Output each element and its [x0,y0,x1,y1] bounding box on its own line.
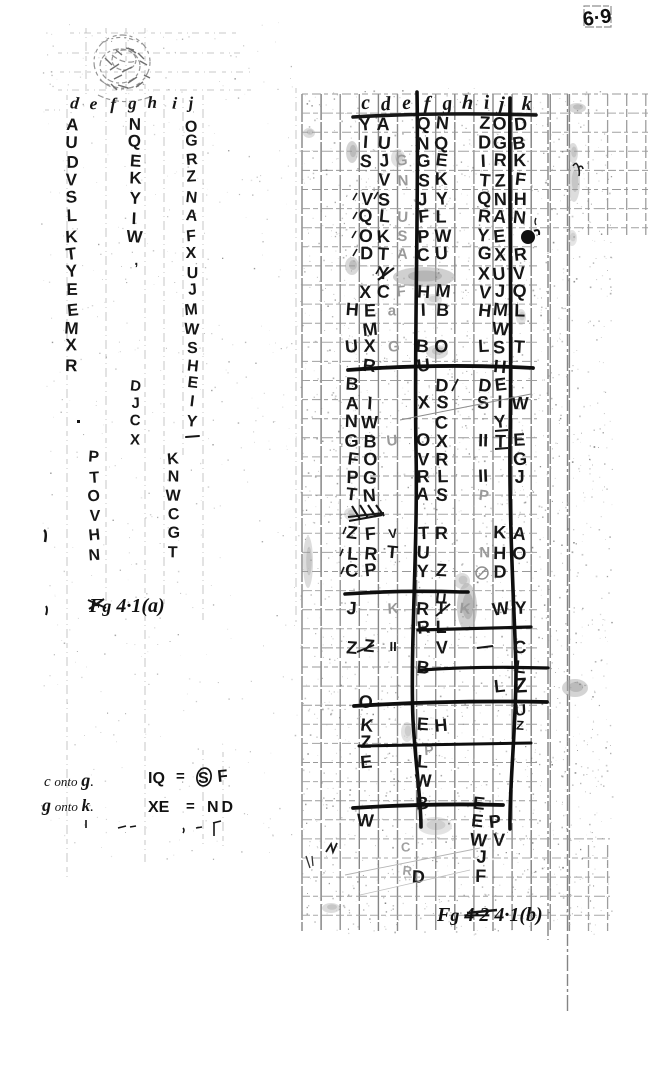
svg-text:W: W [415,771,432,791]
svg-text:N: N [344,411,358,431]
svg-text:W: W [356,810,374,831]
svg-text:E: E [416,714,429,735]
svg-text:S: S [492,337,505,358]
svg-text:ND: ND [207,799,236,816]
svg-text:X: X [359,282,371,302]
svg-text:H: H [434,715,449,736]
svg-text:Q: Q [417,114,431,134]
svg-text:D: D [129,377,142,395]
svg-text:M: M [435,280,452,302]
svg-text:D: D [494,562,507,582]
svg-text:R: R [513,244,528,265]
svg-text:O: O [359,692,374,712]
svg-text:T: T [377,244,389,265]
svg-text:C: C [376,281,391,302]
svg-text:C: C [129,412,141,429]
svg-text:F: F [396,283,407,301]
svg-text:J: J [378,150,390,171]
svg-text:A: A [512,523,527,544]
svg-text:B: B [416,657,431,678]
svg-text:V: V [493,830,506,850]
svg-text:U: U [65,133,78,153]
svg-text:X: X [65,335,78,354]
svg-text:c: c [361,92,371,114]
svg-text:J: J [495,280,506,301]
svg-text:C: C [345,560,359,580]
svg-text:E: E [66,280,78,299]
svg-text:X: X [130,431,141,448]
svg-text:XE: XE [148,799,170,816]
svg-text:N: N [168,468,180,485]
svg-text:N: N [88,547,101,565]
svg-text:U: U [514,702,526,720]
svg-text:S: S [417,170,430,191]
svg-text:K: K [387,600,399,618]
svg-text:T: T [418,523,430,543]
svg-text:P: P [364,559,378,580]
svg-text:U: U [187,265,199,282]
svg-text:L: L [514,300,526,320]
svg-text:A: A [376,114,390,134]
svg-text:A: A [492,206,507,227]
svg-text:e: e [401,92,412,115]
svg-text:,: , [134,252,139,268]
svg-text:H: H [477,300,492,321]
svg-text:E: E [435,149,449,170]
svg-text:A: A [185,207,199,225]
svg-text:Z: Z [514,674,528,698]
svg-text:X: X [417,392,431,413]
svg-text:k: k [521,93,532,115]
svg-text:B: B [436,300,450,321]
svg-text:G: G [395,152,408,170]
svg-text:X: X [186,245,197,262]
svg-text:W: W [491,598,510,620]
svg-text:P: P [478,487,490,505]
svg-text:I: I [497,392,502,412]
svg-text:T: T [89,469,100,487]
svg-text:U: U [434,243,448,264]
svg-text:T: T [513,337,525,358]
svg-text:L: L [478,336,490,357]
svg-text:Y: Y [514,598,527,618]
svg-text:B: B [345,374,359,395]
svg-text:F: F [364,523,377,544]
svg-text:G: G [185,132,198,150]
svg-text:E: E [513,429,526,450]
svg-text:S: S [65,187,78,207]
svg-text:X: X [494,245,506,265]
svg-text:S: S [436,392,450,413]
svg-text:II: II [478,430,489,450]
svg-text:A: A [415,484,430,505]
svg-text:K: K [459,600,472,618]
svg-text:O: O [434,336,449,356]
svg-text:Z: Z [346,637,359,658]
svg-text:R: R [435,523,448,543]
svg-text:A: A [396,245,408,263]
svg-text:M: M [184,301,199,319]
svg-text:K: K [435,169,448,189]
svg-text:U: U [386,432,398,450]
svg-text:J: J [515,467,525,487]
svg-text:H: H [186,357,199,375]
svg-text:Q: Q [358,205,373,226]
svg-text:X: X [478,263,490,283]
svg-text:L: L [437,466,449,486]
svg-text:N: N [185,189,198,207]
svg-text:L: L [493,676,506,697]
svg-text:S: S [359,151,373,172]
svg-text:G: G [477,242,493,263]
svg-text:N: N [512,207,527,228]
svg-text:F: F [475,866,486,886]
svg-text:E: E [470,810,484,831]
svg-text:F: F [514,169,527,190]
svg-text:S: S [187,340,198,357]
svg-text:Z: Z [516,718,525,733]
svg-text:Y: Y [129,189,142,209]
svg-text:G: G [167,525,180,542]
svg-text:E: E [359,751,373,772]
svg-text:E: E [66,300,79,320]
svg-text:W: W [183,321,200,339]
svg-text:H: H [88,527,101,545]
svg-text:T: T [386,542,399,563]
svg-text:V: V [378,170,391,190]
svg-text:B: B [415,336,429,357]
svg-text:g: g [127,94,137,113]
svg-text:A: A [66,115,79,135]
svg-text:U: U [344,336,359,357]
svg-text:6·9: 6·9 [581,5,613,31]
svg-text:D: D [513,113,528,134]
svg-text:F: F [417,206,430,227]
svg-text:II: II [390,639,397,654]
svg-text:IQ: IQ [148,770,165,787]
svg-text:V: V [89,508,100,525]
svg-text:D: D [478,132,491,152]
svg-text:F: F [185,228,196,246]
svg-text:Z: Z [360,732,371,752]
svg-text:O: O [512,543,526,563]
svg-text:K: K [129,168,143,187]
svg-text:R: R [65,356,78,375]
svg-text:a: a [388,302,397,319]
svg-text:K: K [166,450,180,468]
svg-text:Z: Z [494,170,506,191]
svg-text:C: C [416,244,430,265]
svg-text:Y: Y [186,413,199,431]
svg-text:N: N [397,172,408,189]
svg-text:S: S [435,484,449,505]
svg-text:T: T [168,544,178,561]
svg-text:W: W [166,488,182,505]
svg-text:Y: Y [493,411,507,432]
svg-text:D: D [411,866,425,887]
svg-text:P: P [88,448,100,466]
svg-text:K: K [493,522,506,542]
svg-text:J: J [476,846,487,867]
svg-text:O: O [87,487,101,505]
svg-text:U: U [434,590,447,608]
svg-text:W: W [126,227,144,247]
svg-text:G: G [387,338,400,356]
svg-text:R: R [477,205,492,226]
svg-text:II: II [478,466,489,486]
svg-text:J: J [187,281,197,299]
svg-text:I: I [420,300,426,320]
svg-text:K: K [513,150,526,170]
svg-text:Z: Z [435,560,447,580]
svg-text:L: L [436,207,447,227]
svg-text:O: O [492,113,508,134]
svg-text:R: R [416,617,431,638]
svg-text:U: U [416,542,430,563]
svg-text:W: W [361,412,378,432]
svg-text:I: I [131,209,137,228]
svg-text:Fg 4·2 4·1(b): Fg 4·2 4·1(b) [436,904,543,926]
svg-text:I: I [480,151,486,171]
svg-text:R: R [185,151,198,169]
svg-text:F: F [216,766,228,786]
svg-text:M: M [492,299,509,320]
svg-text:R: R [493,150,507,171]
svg-text:h: h [461,92,473,115]
svg-text:L: L [378,206,391,227]
svg-text:H: H [493,543,506,563]
svg-text:Q: Q [512,280,528,301]
svg-text:C: C [513,637,527,658]
svg-text:E: E [364,300,376,320]
svg-text:Y: Y [417,561,429,581]
svg-text:=: = [186,798,195,815]
svg-text:G: G [416,151,430,171]
svg-text:J: J [131,395,140,412]
svg-text:N: N [479,544,490,561]
svg-text:Z: Z [186,168,197,186]
svg-text:Z: Z [479,113,491,133]
svg-text:Q: Q [127,131,141,150]
svg-text:N: N [362,485,376,506]
svg-text:D: D [66,153,79,172]
svg-text:X: X [364,336,376,356]
svg-text:L: L [66,206,77,225]
svg-text:N: N [435,112,450,133]
svg-text:U: U [397,209,409,227]
svg-text:=: = [176,768,185,785]
svg-text:S: S [397,228,408,246]
svg-text:J: J [346,598,357,619]
svg-text:H: H [345,299,359,320]
svg-text:h: h [148,93,158,112]
svg-text:L: L [436,617,447,637]
svg-text:V: V [436,637,449,658]
svg-text:R: R [362,355,377,376]
svg-text:O: O [416,430,431,450]
svg-text:D: D [360,243,373,263]
svg-text:C: C [167,506,180,524]
svg-text:T: T [345,484,358,505]
